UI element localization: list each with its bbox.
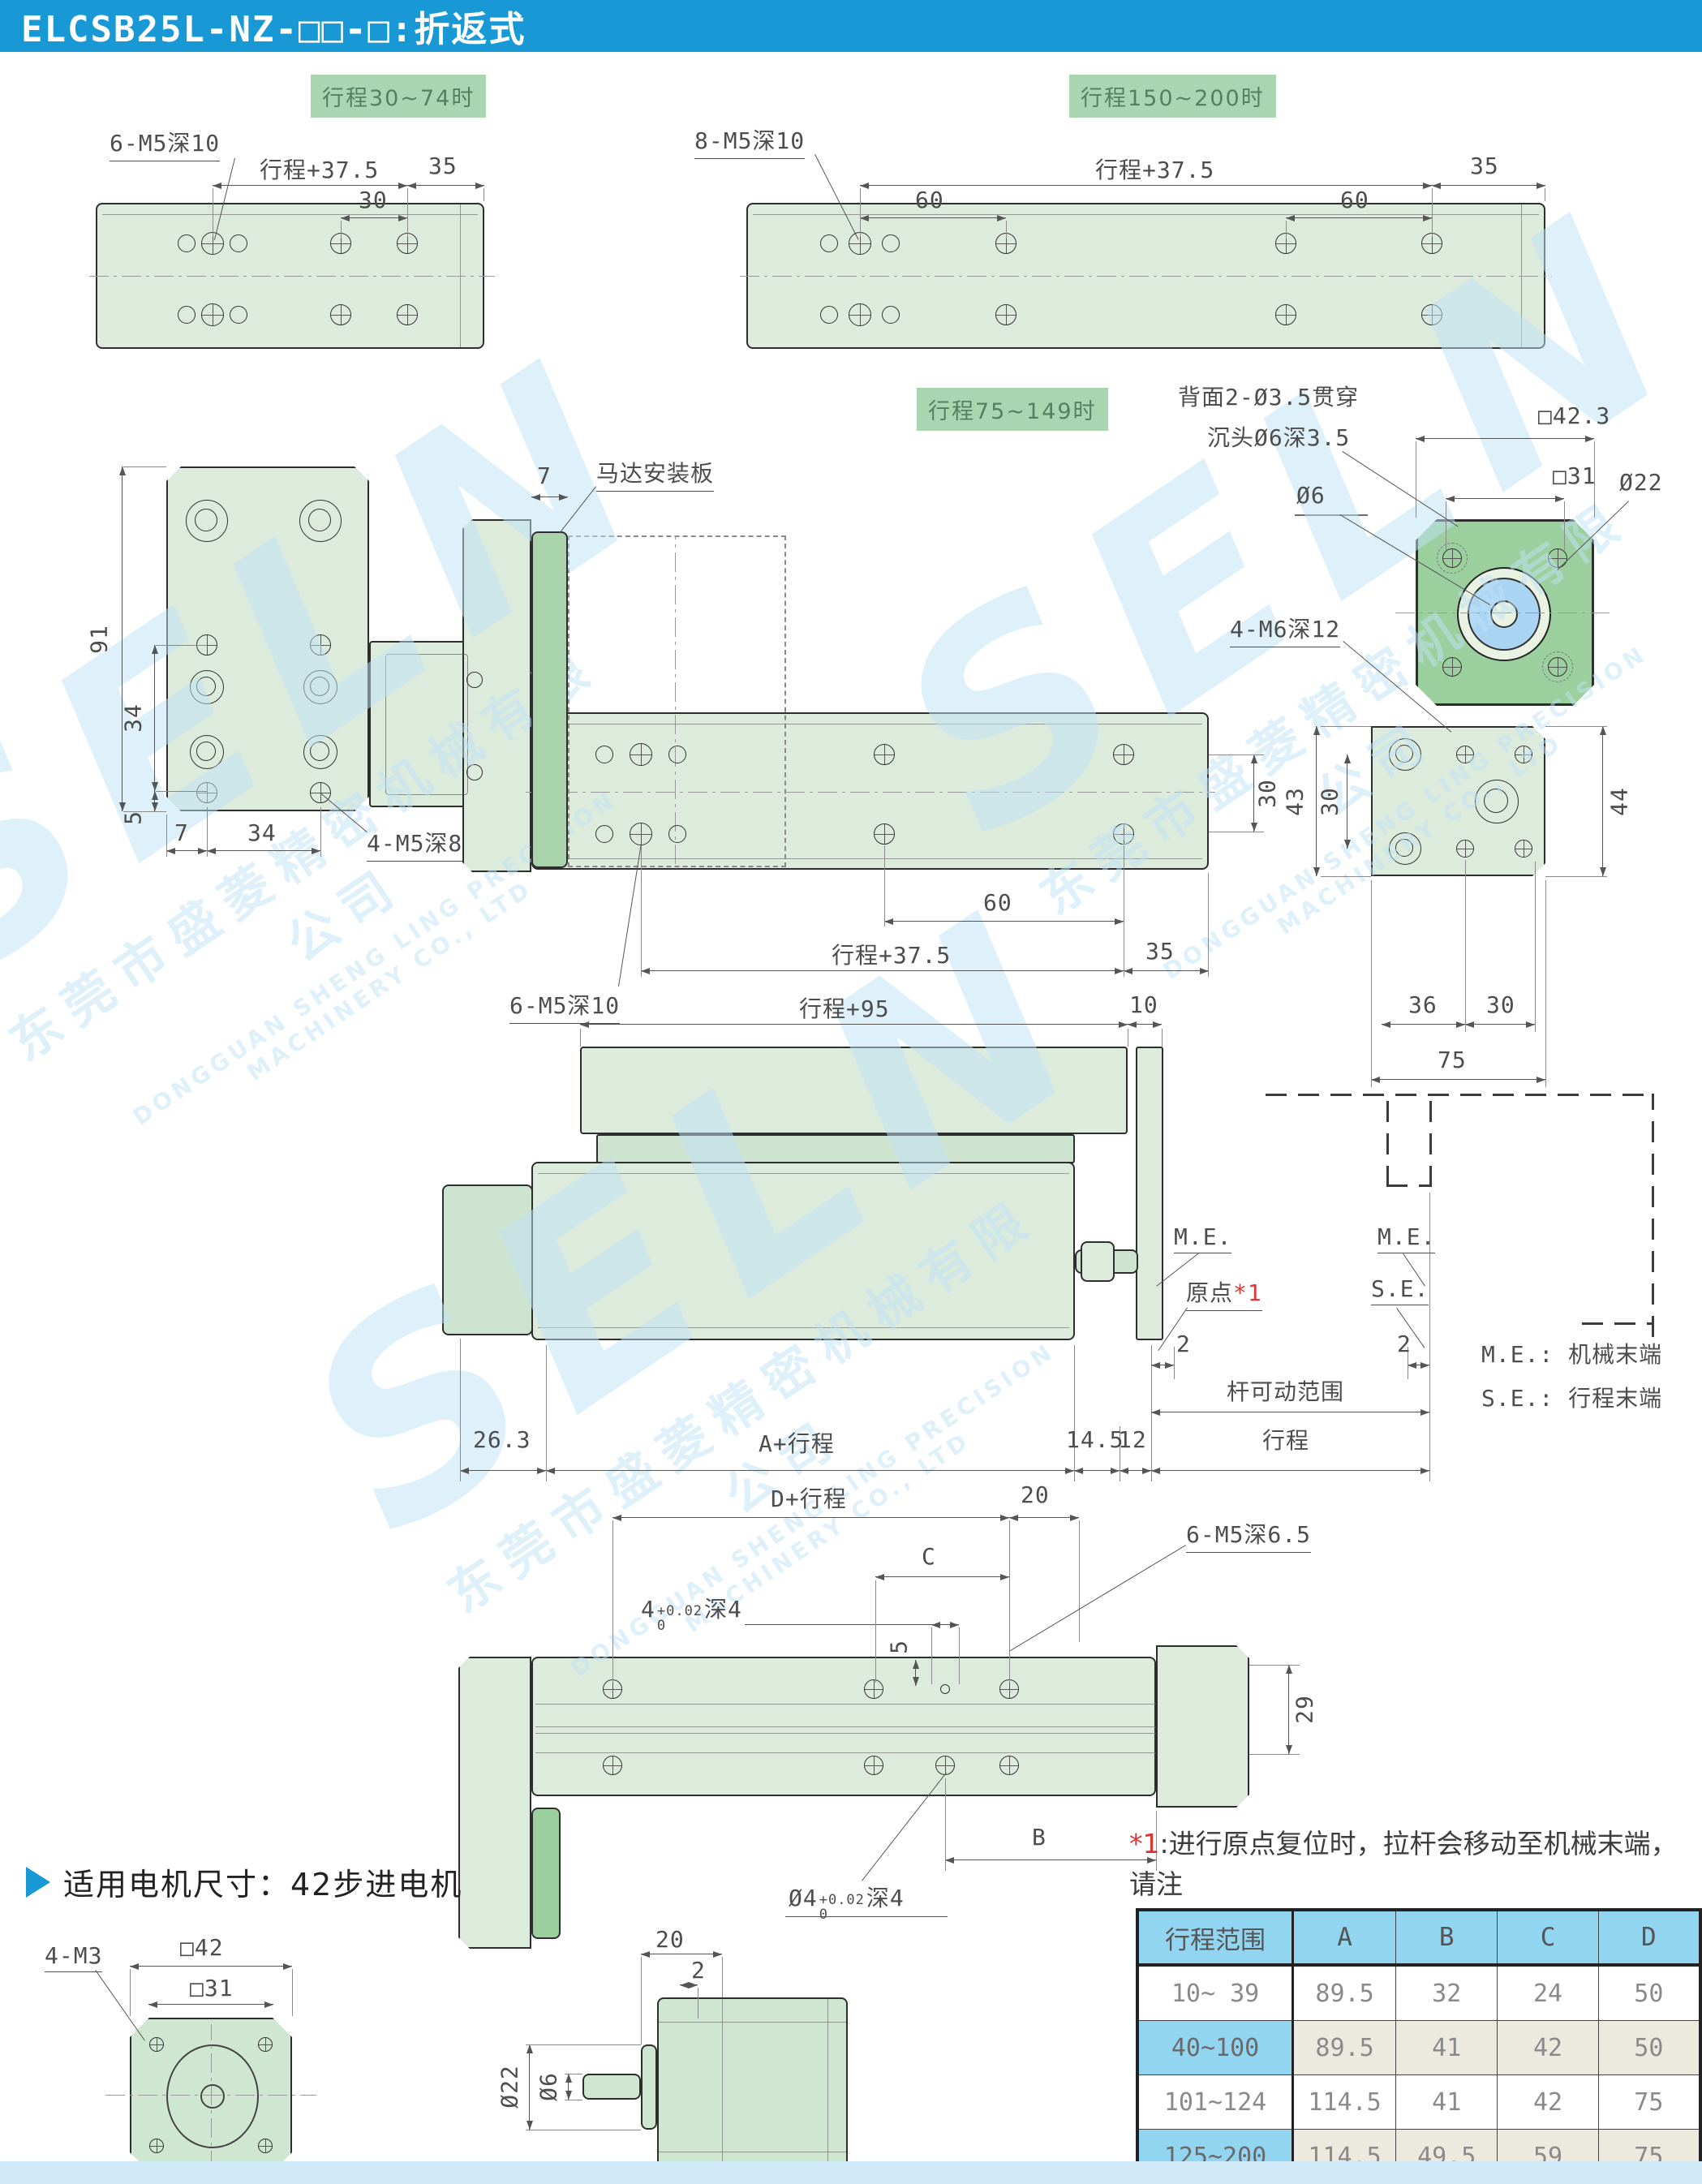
origin-label: 原点*1 [1186, 1275, 1262, 1311]
leader-label: 4-M3 [45, 1942, 102, 1972]
col-header-d: D [1598, 1910, 1700, 1965]
hole [595, 825, 613, 843]
dashed-silhouette [1582, 1322, 1653, 1325]
drawing-shape [320, 807, 321, 857]
drawing-shape [535, 1733, 1156, 1734]
pin-dim-label: Ø4+0.020深4 [789, 1881, 905, 1923]
drawing-shape [931, 1627, 932, 1684]
hole-inner [310, 742, 329, 761]
drawing-shape [641, 970, 1124, 971]
drawing-shape: 4 [641, 1596, 655, 1623]
drawing-shape [580, 1024, 1128, 1025]
drawing-shape [1128, 1029, 1128, 1047]
range-tag: 行程75~149时 [917, 388, 1108, 431]
hole [1389, 738, 1421, 771]
leader-label: 4-M6深12 [1230, 612, 1340, 647]
hole [190, 735, 224, 769]
drawing-shape [538, 1327, 1069, 1328]
drawing-shape [538, 1173, 1069, 1174]
drawing-shape [1564, 501, 1565, 550]
hole [1421, 304, 1442, 325]
drawing-shape [641, 1957, 642, 2044]
drawing-shape [1124, 845, 1124, 977]
hole [999, 1756, 1019, 1775]
table-row: 10~ 3989.5322450 [1137, 1965, 1700, 2021]
dim-label: 26.3 [473, 1426, 531, 1453]
hole [849, 303, 871, 326]
value-cell: 41 [1396, 2021, 1498, 2075]
drawing-shape [1128, 1024, 1162, 1025]
drawing-shape [1249, 1754, 1300, 1755]
dim-label: C [922, 1543, 936, 1570]
drawing-shape [641, 1954, 722, 1954]
drawing-shape [612, 1520, 613, 1683]
drawing-shape [1009, 1517, 1079, 1518]
hole [864, 1679, 883, 1699]
dim-label: 行程+37.5 [832, 938, 951, 970]
drawing-shape [341, 221, 342, 239]
drawing-shape [1120, 1470, 1151, 1471]
hole [201, 303, 224, 326]
drawing-shape [1174, 1347, 1175, 1379]
value-cell: 50 [1598, 1965, 1700, 2021]
drawing-shape [565, 2074, 582, 2074]
drawing-shape [166, 850, 207, 851]
drawing-shape [884, 845, 885, 926]
drawing-shape [341, 217, 407, 218]
drawing-shape [213, 185, 407, 186]
drawing-shape [1347, 755, 1347, 849]
drawing-shape [1545, 876, 1607, 877]
dim-label: 行程+37.5 [260, 153, 379, 185]
hole [178, 306, 196, 324]
hole [258, 2139, 273, 2153]
drawing-shape [130, 1969, 131, 2016]
col-header-b: B [1396, 1910, 1498, 1965]
hole [178, 234, 196, 252]
dim-label: 行程+37.5 [1095, 153, 1214, 185]
dim-label: 29 [1292, 1695, 1318, 1724]
dim-label: 5 [120, 810, 147, 825]
hole-inner [308, 509, 331, 531]
hole [299, 500, 342, 542]
drawing-shape: *1 [1233, 1279, 1262, 1306]
drawing-shape [1432, 185, 1545, 186]
hole [330, 304, 351, 325]
drawing-shape [526, 792, 1215, 793]
range-tag: 行程150~200时 [1069, 75, 1276, 118]
value-cell: 75 [1598, 2075, 1700, 2130]
drawing-shape: :进行原点复位时，拉杆会移动至机械末端，请注 [1129, 1828, 1678, 1900]
drawing-shape [531, 497, 568, 497]
drawing-shape [1249, 1665, 1300, 1666]
drawing-shape [1465, 1024, 1535, 1025]
leader-label: 马达安装板 [596, 456, 714, 492]
drawing-shape [123, 466, 166, 467]
dim-label: 行程+95 [799, 991, 890, 1024]
drawing-shape [1124, 970, 1209, 971]
hole [882, 306, 900, 324]
drawing-shape [1321, 726, 1371, 727]
hole-inner [1484, 789, 1508, 813]
se-label: S.E. [1371, 1275, 1429, 1305]
drawing-shape [568, 2074, 569, 2100]
hole [995, 304, 1016, 325]
drawing-shape [526, 2044, 641, 2045]
drawing-shape [1545, 880, 1546, 1087]
drawing-shape [1446, 498, 1564, 499]
drawing-shape [915, 1660, 916, 1686]
drawing-shape [1395, 613, 1614, 613]
hole [630, 743, 652, 766]
value-cell: 89.5 [1293, 2021, 1396, 2075]
drawing-shape: Ø4 [789, 1885, 818, 1911]
dim-label: 7 [537, 462, 552, 489]
rod-range-label: 杆可动范围 [1227, 1374, 1344, 1407]
drawing-shape [875, 1576, 1009, 1577]
drawing-shape [166, 815, 167, 857]
drawing-shape [1545, 188, 1545, 201]
table-row: 101~124114.5414275 [1137, 2075, 1700, 2130]
datasheet-page: ELCSB25L-NZ-□□-□:折返式 SELN 东莞市盛菱精密机械有限公司 … [0, 0, 1702, 2184]
drawing-shape: 行程范围 A B C D [1137, 1910, 1700, 1965]
drawing-shape [1079, 1520, 1080, 1642]
drawing-shape [827, 1999, 828, 2173]
dashed-silhouette [1386, 1094, 1389, 1187]
dim-label: Ø6 [1296, 482, 1326, 509]
drawing-shape [1286, 221, 1287, 239]
dim-label: □42.3 [1538, 402, 1610, 429]
drawing-shape [156, 645, 207, 646]
drawing-shape [860, 188, 861, 237]
hole-inner [195, 509, 217, 531]
motor-section-title: 适用电机尺寸：42步进电机 [63, 1859, 462, 1904]
leader-label: 6-M5深6.5 [1186, 1517, 1311, 1553]
drawing-shape [211, 2024, 212, 2170]
hole [940, 1684, 950, 1694]
drawing-shape [1321, 876, 1371, 877]
motor-section-header: 适用电机尺寸：42步进电机 [26, 1859, 462, 1904]
dim-label: 20 [1021, 1481, 1050, 1508]
hole [230, 234, 247, 252]
col-header-range: 行程范围 [1137, 1910, 1293, 1965]
hole [310, 634, 331, 656]
dim-label: □42 [180, 1934, 224, 1961]
drawing-shape [1009, 1520, 1010, 1683]
drawing-shape [1074, 1345, 1075, 1481]
dim-label: 5 [886, 1640, 913, 1654]
drawing-shape [945, 1859, 1156, 1860]
dim-label: 7 [174, 819, 189, 846]
drawing-shape [535, 1704, 1156, 1705]
drawing-shape [535, 1752, 1156, 1753]
value-cell: 42 [1498, 2021, 1598, 2075]
hole [1515, 840, 1532, 858]
drawing-shape [1382, 1024, 1465, 1025]
hole [1456, 746, 1474, 763]
leader-label: 6-M5深10 [509, 988, 620, 1024]
drawing-shape [460, 1470, 546, 1471]
range-cell: 101~124 [1137, 2075, 1293, 2130]
drawing-shape [1446, 501, 1446, 550]
drawing-shape [407, 188, 408, 237]
dim-label: 36 [1408, 991, 1438, 1018]
footnote-ref: *1 [1129, 1828, 1160, 1859]
drawing-shape: +0.020 [819, 1894, 865, 1923]
drawing-shape [1209, 755, 1264, 755]
hole [668, 746, 686, 763]
col-header-a: A [1293, 1910, 1396, 1965]
triangle-bullet-icon [26, 1867, 50, 1898]
leader-label: 4-M5深8 [367, 826, 462, 862]
drawing-shape [884, 921, 1124, 922]
dim-label: 20 [655, 1926, 685, 1953]
hole-inner [196, 742, 216, 761]
shaft-circle [200, 2084, 225, 2109]
hole-inner [1395, 745, 1413, 763]
drawing-shape [875, 1580, 876, 1683]
drawing-shape: 原点 [1186, 1279, 1233, 1306]
dashed-silhouette [1429, 1094, 1432, 1187]
drawing-shape [535, 1726, 1156, 1727]
value-cell: 24 [1498, 1965, 1598, 2021]
dim-label: 35 [1470, 153, 1499, 179]
dim-label: 34 [120, 703, 147, 733]
dim-label: 14.5 [1066, 1426, 1124, 1453]
hole [1113, 744, 1134, 765]
value-cell: 114.5 [1293, 2075, 1396, 2130]
drawing-shape: 0 [819, 1908, 865, 1923]
drawing-shape [154, 645, 155, 791]
flange-note: 背面2-Ø3.5贯穿 [1178, 380, 1359, 412]
dim-label: 30 [1254, 779, 1281, 808]
drawing-shape [538, 724, 1202, 724]
footnote-line1: *1:进行原点复位时，拉杆会移动至机械末端，请注 [1129, 1824, 1697, 1904]
hole [1548, 548, 1567, 568]
drawing-shape: 0 [657, 1619, 703, 1634]
drawing-shape [1006, 221, 1007, 239]
drawing-shape [1151, 1470, 1429, 1471]
drawing-shape [122, 466, 122, 811]
footer-strip [0, 2161, 1702, 2184]
drawing-shape [860, 217, 1006, 218]
hole [820, 306, 838, 324]
flange-note: 沉头Ø6深3.5 [1207, 420, 1350, 453]
drawing-shape [1209, 832, 1264, 832]
drawing-shape [207, 850, 320, 851]
drawing-shape [565, 2100, 582, 2100]
hole [303, 670, 337, 704]
stroke-label: 行程 [1262, 1423, 1309, 1455]
drawing-shape [680, 1984, 698, 1985]
legend-se: S.E.: 行程末端 [1481, 1381, 1662, 1413]
dim-label: 2 [691, 1957, 706, 1984]
legend-me: M.E.: 机械末端 [1481, 1337, 1662, 1369]
hole [1475, 780, 1519, 823]
dim-label: 75 [1438, 1047, 1467, 1073]
value-cell: 89.5 [1293, 1965, 1396, 2021]
dim-label: Ø6 [535, 2072, 562, 2101]
hole [196, 782, 217, 803]
drawing-shape [1074, 1470, 1120, 1471]
drawing-shape [860, 185, 1432, 186]
drawing-shape [945, 1778, 946, 1871]
drawing-shape [154, 791, 155, 811]
leader-label: 6-M5深10 [110, 126, 220, 161]
drawing-shape [1408, 1365, 1429, 1365]
drawing-shape [659, 2152, 846, 2152]
dim-label: 2 [1397, 1331, 1412, 1357]
drawing-shape [385, 654, 468, 795]
stroke-table: 行程范围 A B C D 10~ 3989.532245040~10089.54… [1136, 1908, 1702, 2184]
drawing-shape [931, 1624, 959, 1625]
drawing-shape [102, 214, 478, 215]
hole [820, 234, 838, 252]
drawing-shape [207, 807, 208, 857]
shaft-hole [1490, 600, 1518, 628]
hole [595, 746, 613, 763]
drawing-shape [148, 2004, 273, 2005]
drawing-shape [959, 1627, 960, 1684]
motor-outline-dashed [568, 535, 786, 867]
hole [466, 672, 483, 688]
drawing-shape [89, 276, 495, 277]
hole [874, 823, 895, 845]
drawing-shape [1602, 726, 1603, 876]
drawing-shape [407, 185, 484, 186]
drawing-shape [1416, 438, 1594, 439]
drawing-shape [698, 1988, 698, 2018]
drawing-shape [529, 2044, 530, 2130]
drawing-shape [1288, 1665, 1289, 1754]
hole [258, 2037, 273, 2052]
hole [882, 234, 900, 252]
table-header-row: 行程范围 A B C D [1137, 1910, 1700, 1965]
dim-label: 30 [1317, 787, 1343, 816]
dim-label: 35 [1145, 938, 1175, 965]
hole [874, 744, 895, 765]
hole [230, 306, 247, 324]
drawing-shape: 深4 [866, 1885, 905, 1911]
drawing-shape [546, 1470, 1074, 1471]
drawing-shape [722, 1999, 723, 2173]
drawing-shape [1151, 1412, 1429, 1412]
hole [149, 2139, 164, 2153]
dim-label: 44 [1606, 787, 1633, 816]
dim-label: A+行程 [759, 1426, 835, 1459]
drawing-shape [1371, 1079, 1545, 1080]
drawing-shape [1545, 726, 1607, 727]
me-right-label: M.E. [1378, 1223, 1435, 1253]
dashed-silhouette [1266, 1094, 1653, 1096]
hole [864, 1756, 883, 1775]
dim-label: 2 [1176, 1331, 1191, 1357]
drawing-shape [1208, 873, 1209, 977]
drawing-shape [130, 1966, 292, 1967]
drawing-shape [1371, 880, 1372, 1087]
dim-label: 60 [1340, 187, 1369, 213]
hole [1542, 651, 1573, 682]
pin-dim-label: 4+0.020深4 [641, 1592, 742, 1634]
dim-label: 30 [1486, 991, 1515, 1018]
hole [1437, 543, 1468, 574]
dim-label: □31 [190, 1975, 234, 2001]
motor-shaft [582, 2074, 641, 2100]
value-cell: 32 [1396, 1965, 1498, 2021]
hole-inner [196, 677, 216, 696]
drawing-shape [659, 2022, 846, 2023]
leader-label: 8-M5深10 [694, 123, 805, 159]
drawing-shape [156, 791, 207, 792]
hole [630, 823, 652, 845]
drawing-shape [1416, 441, 1416, 518]
drawing-shape [745, 1624, 931, 1625]
hole [1275, 304, 1296, 325]
drawing-shape [460, 1339, 461, 1481]
drawing-shape [213, 188, 213, 237]
dim-label: 35 [428, 153, 458, 179]
hole [303, 735, 337, 769]
table-body: 10~ 3989.532245040~10089.5414250101~1241… [1137, 1965, 1700, 2184]
me-left-label: M.E. [1174, 1223, 1231, 1253]
dim-label: D+行程 [771, 1481, 847, 1514]
dim-label: 91 [86, 625, 113, 654]
hole [190, 670, 224, 704]
dashed-silhouette [1652, 1094, 1654, 1337]
dim-label: 43 [1282, 787, 1309, 816]
drawing-shape [580, 1029, 581, 1047]
drawing-shape [641, 845, 642, 977]
hole [1442, 657, 1462, 677]
hole [668, 825, 686, 843]
value-cell: 41 [1396, 2075, 1498, 2130]
drawing-shape [1432, 188, 1433, 237]
drawing-shape [484, 188, 484, 201]
pilot-boss [641, 2044, 657, 2130]
col-header-c: C [1498, 1910, 1598, 1965]
table-row: 40~10089.5414250 [1137, 2021, 1700, 2075]
dashed-silhouette [1386, 1184, 1432, 1187]
hole [466, 764, 483, 780]
dim-label: 30 [359, 187, 388, 213]
drawing-shape [1295, 514, 1368, 516]
drawing-shape [292, 1969, 293, 2016]
motor-body [657, 1997, 848, 2174]
dim-label: □31 [1553, 462, 1597, 489]
drawing-shape [1286, 217, 1432, 218]
range-tag: 行程30~74时 [311, 75, 486, 118]
drawing-shape [546, 1345, 547, 1481]
drawing-shape [675, 535, 676, 864]
value-cell: 50 [1598, 2021, 1700, 2075]
hole [1515, 746, 1532, 763]
hole [1456, 840, 1474, 858]
drawing-shape: 深4 [704, 1596, 742, 1623]
drawing-shape [1465, 862, 1466, 1032]
dim-label: 34 [247, 819, 277, 846]
dim-label: 60 [983, 889, 1012, 916]
dim-label: Ø22 [1619, 469, 1663, 496]
drawing-shape [526, 2130, 641, 2130]
range-cell: 40~100 [1137, 2021, 1293, 2075]
motor-plate [531, 531, 568, 868]
value-cell: 42 [1498, 2075, 1598, 2130]
dim-label: B [1032, 1824, 1047, 1851]
hole [1389, 832, 1421, 865]
dim-label: Ø22 [496, 2065, 523, 2109]
hole [149, 2037, 164, 2052]
hole [186, 500, 228, 542]
